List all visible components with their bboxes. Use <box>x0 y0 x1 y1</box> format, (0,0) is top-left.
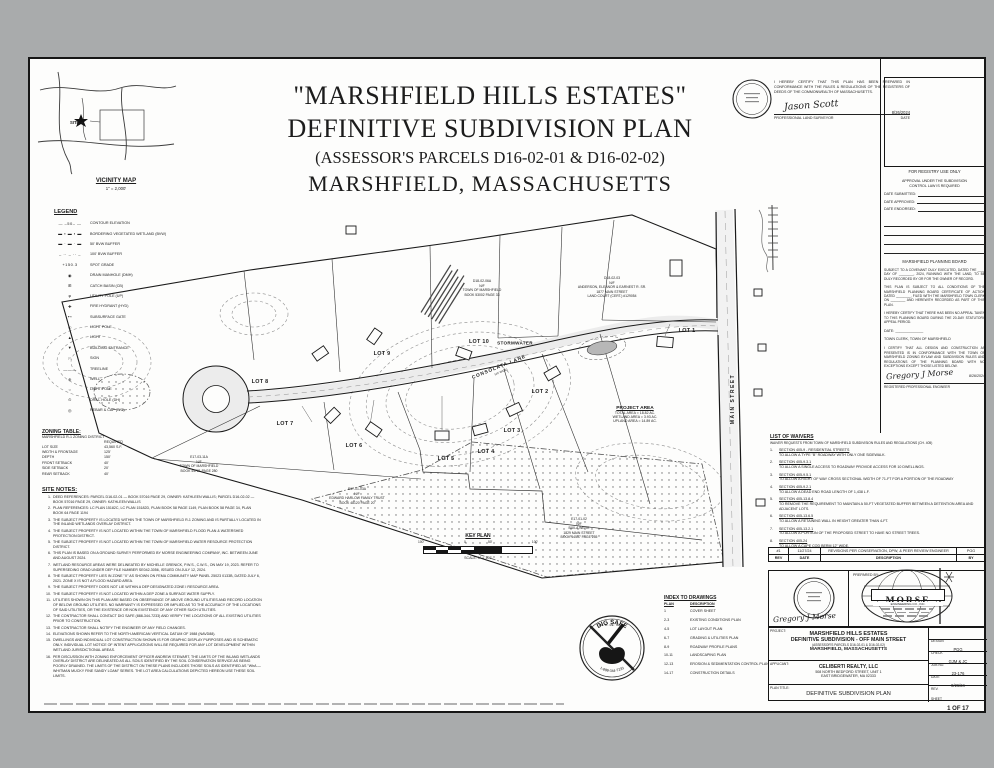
legend-row: ⊞CATCH BASIN (CB) <box>50 280 200 290</box>
meta-design: DESIGNPGG <box>929 628 987 640</box>
site-note: 1.DEED REFERENCES: PARCEL D16-02-01 — BO… <box>42 495 262 505</box>
lot-label-8: LOT 8 <box>252 379 269 385</box>
lot-label-2: LOT 2 <box>532 389 549 395</box>
legend-row: ✚FIRE HYDRANT (HYD) <box>50 301 200 311</box>
firm-address-line <box>883 615 931 617</box>
site-note: 2.PLAN REFERENCES: LC PLAN 15182C, LC PL… <box>42 506 262 516</box>
legend-row: +150.3SPOT GRADE <box>50 260 200 270</box>
legend-row: ▼BUILDING ENTRANCE <box>50 343 200 353</box>
legend-row: ▲LIGHT <box>50 332 200 342</box>
engineer-role: REGISTERED PROFESSIONAL ENGINEER <box>884 385 985 389</box>
abutter-label: D18-02-03 N/F ANDERSON, ELEANOR & EARNES… <box>578 276 646 299</box>
index-row: 1COVER SHEET <box>664 607 794 616</box>
site-note: 3.THE SUBJECT PROPERTY IS LOCATED WITHIN… <box>42 518 262 528</box>
signature-line <box>884 218 985 227</box>
lot-label-3: LOT 3 <box>504 428 521 434</box>
abutter-label: E17-03-11A N/F TOWN OF MARSHFIELD BOOK 4… <box>180 455 219 473</box>
wall-tick-line <box>759 205 778 272</box>
signature-line <box>884 236 985 245</box>
planning-conditions: THIS PLAN IS SUBJECT TO ALL CONDITIONS O… <box>884 285 985 307</box>
vicinity-site-label: SITE ★ <box>70 120 84 125</box>
registry-approval2: CONTROL LAW IS REQUIRED <box>884 184 985 189</box>
firm-subname: ENGINEERING CO., INC. <box>873 602 943 606</box>
revision-table: #1 11/27/24 REVISIONS PER CONSERVATION, … <box>768 547 986 562</box>
engine er-cert-text: I CERTIFY THAT ALL DESIGN AND CONSTRUCTI… <box>884 346 985 368</box>
waiver-item: 6.SECTION 405-13.6.5TO ALLOW A RETAINING… <box>770 514 986 524</box>
legend-row: ○LIGHT POLE <box>50 384 200 394</box>
lot-label-6: LOT 6 <box>346 443 363 449</box>
index-row: 10-11LANDSCAPING PLAN <box>664 651 794 660</box>
prepared-by-label: PREPARED BY: <box>853 573 879 578</box>
legend-row: ⊕WELL <box>50 374 200 384</box>
plan-title-line4: MARSHFIELD, MASSACHUSETTS <box>200 171 780 197</box>
site-note: 6.THIS PLAN IS BASED ON A GROUND SURVEY … <box>42 551 262 561</box>
planning-covenant: SUBJECT TO A COVENANT DULY EXECUTED, DAT… <box>884 268 985 281</box>
surveyor-role: PROFESSIONAL LAND SURVEYOR <box>774 116 834 121</box>
key-plan-title: KEY PLAN <box>418 533 538 539</box>
svg-text:1-888-344-7233: 1-888-344-7233 <box>599 666 624 673</box>
engineer-signature: Gregory J Morse <box>886 368 954 382</box>
digsafe-logo: DIG SAFE 1-888-344-7233 MA · RI · ME · N… <box>580 616 644 680</box>
key-plan-scale: SCALE: 1" = 100' <box>418 556 538 561</box>
legend-row: ﹏﹏﹏TREELINE <box>50 363 200 373</box>
index-row: 4-5LOT LAYOUT PLAN <box>664 625 794 634</box>
prepared-by-block: Gregory J Morse PREPARED BY: MORSE ENGIN… <box>768 570 986 627</box>
project-area-block: PROJECT AREA TOTAL AREA = 18.82 AC. WETL… <box>590 406 680 423</box>
lot-label-10: LOT 10 <box>469 339 489 345</box>
legend-row: ◉DRAIN MANHOLE (DMH) <box>50 270 200 280</box>
index-row: 8-9ROADWAY PROFILE PLANS <box>664 643 794 652</box>
stormwater-label: STORMWATER <box>497 341 533 346</box>
vicinity-title: VICINITY MAP <box>48 178 184 184</box>
lot-label-7: LOT 7 <box>277 421 294 427</box>
index-row: 14-17CONSTRUCTION DETAILS <box>664 669 794 678</box>
meta-date: DATE8/26/24 <box>929 664 987 676</box>
date-submitted-label: DATE SUBMITTED: <box>884 192 916 197</box>
legend-row: ⚐SIGN <box>50 353 200 363</box>
plan-title-cell: PLAN TITLE: DEFINITIVE SUBDIVISION PLAN <box>769 685 929 702</box>
site-notes: SITE NOTES: 1.DEED REFERENCES: PARCEL D1… <box>42 487 262 679</box>
rev-header: DATE <box>789 555 821 561</box>
column-divider <box>880 59 881 433</box>
site-note: 10.THE SUBJECT PROPERTY IS NOT LOCATED W… <box>42 592 262 597</box>
legend-title: LEGEND <box>54 209 200 215</box>
site-note: 16.PER DISCUSSION WITH ZONING ENFORCEMEN… <box>42 655 262 679</box>
registry-box-label: FOR REGISTRY USE ONLY <box>884 169 985 175</box>
waiver-item: 7.SECTION 405-13.2.1TO ALLOW A PORTION O… <box>770 527 986 537</box>
date-endorsed-label: DATE ENDORSED: <box>884 207 916 212</box>
waivers-block: LIST OF WAIVERS WAIVER REQUESTS FROM TOW… <box>770 434 986 549</box>
waivers-title: LIST OF WAIVERS <box>770 434 986 440</box>
meta-jobno: JOB NO.23-176 <box>929 652 987 664</box>
site-note: 12.THE CONTRACTOR SHALL CONTACT DIG SAFE… <box>42 614 262 624</box>
legend-row: ⊷SUBSURFACE GATE <box>50 312 200 322</box>
site-note: 4.THE SUBJECT PROPERTY IS NOT LOCATED WI… <box>42 529 262 539</box>
scale-ticks: 100' 0 50' 100' <box>418 540 538 546</box>
signature-line <box>884 245 985 254</box>
site-notes-title: SITE NOTES: <box>42 487 262 493</box>
firm-address-line <box>881 608 933 610</box>
digsafe-phone: 1-888-344-7233 <box>599 666 624 673</box>
vicinity-scale: 1" = 2,000' <box>48 186 184 191</box>
index-to-drawings: INDEX TO DRAWINGS PLANDESCRIPTION 1COVER… <box>664 595 794 678</box>
waiver-item: 5.SECTION 405-13.8.4TO REMOVE THE REQUIR… <box>770 497 986 512</box>
vicinity-map-roads <box>38 72 176 174</box>
meta-check: CHECKGJM & JC <box>929 640 987 652</box>
meta-column: DESIGNPGG CHECKGJM & JC JOB NO.23-176 DA… <box>929 628 987 700</box>
rev-header: DESCRIPTION <box>821 555 957 561</box>
abutter-label: E17-01-03A N/F EDWARD HARLOW FAMILY TRUS… <box>329 487 385 505</box>
lot-label-5: LOT 5 <box>438 456 455 462</box>
zoning-row: REAR SETBACK40' <box>42 472 192 477</box>
index-row: 2-3EXISTING CONDITIONS PLAN <box>664 616 794 625</box>
legend-row: ⊙DRILL HOLE (DH) <box>50 395 200 405</box>
waiver-item: 3.SECTION 405-9.5.1TO ALLOW A RIGHT OF W… <box>770 473 986 483</box>
footer-fineprint <box>44 703 564 705</box>
waiver-item: 4.SECTION 405-9.2.1TO ALLOW A DEAD END R… <box>770 485 986 495</box>
site-note: 14.ELEVATIONS SHOWN REFER TO THE NORTH A… <box>42 632 262 637</box>
lot-label-9: LOT 9 <box>374 351 391 357</box>
rev-cell: 11/27/24 <box>789 548 821 555</box>
page-background: { "colors":{"page_bg":"#a9abac","sheet":… <box>0 0 994 768</box>
meta-sheet: SHEET1 OF 17 <box>929 686 987 702</box>
digsafe-states: MA · RI · ME · NH · VT <box>599 623 626 627</box>
abutter-label: E17-01-02 N/F BUILA WEHR 1829 MAIN STREE… <box>561 517 598 540</box>
site-note: 8.THE SUBJECT PROPERTY LIES IN ZONE "X" … <box>42 574 262 584</box>
signature-line <box>884 227 985 236</box>
plan-title-line3: (ASSESSOR'S PARCELS D16-02-01 & D16-02-0… <box>200 148 780 168</box>
cul-de-sac-island <box>203 386 230 413</box>
index-row: 12-13EROSION & SEDIMENTATION CONTROL PLA… <box>664 660 794 669</box>
lot-label-1: LOT 1 <box>679 328 696 334</box>
legend: LEGEND — –50– —CONTOUR ELEVATION ▬ ▪ ▬ ▪… <box>50 209 200 415</box>
shovel-icon <box>599 647 625 664</box>
legend-row: — –50– —CONTOUR ELEVATION <box>50 218 200 228</box>
planning-date-line: DATE: ______________ <box>884 329 985 334</box>
engineer-date: 8/26/2024 <box>969 374 985 379</box>
site-note: 7.WETLAND RESOURCE AREAS WERE DELINEATED… <box>42 563 262 573</box>
main-street-label: MAIN STREET <box>730 374 736 424</box>
rev-cell: PGG <box>957 548 985 555</box>
registry-column: FOR REGISTRY USE ONLY APPROVAL UNDER THE… <box>884 77 985 390</box>
legend-row: ▬ ▪ ▬ ▪ ▬BORDERING VEGETATED WETLAND (BV… <box>50 228 200 238</box>
title-block: PROJECT: MARSHFIELD HILLS ESTATES DEFINI… <box>768 627 986 701</box>
town-clerk-line: TOWN CLERK, TOWN OF MARSHFIELD <box>884 337 985 342</box>
rev-cell: REVISIONS PER CONSERVATION, DPW, & PEER … <box>821 548 957 555</box>
legend-row: ▬ · ▬ · ▬50' BVW BUFFER <box>50 239 200 249</box>
planning-board-title: MARSHFIELD PLANNING BOARD <box>884 259 985 265</box>
plan-title-line2: DEFINITIVE SUBDIVISION PLAN <box>200 114 780 144</box>
plan-title-line1: "MARSHFIELD HILLS ESTATES" <box>200 81 780 111</box>
key-plan: KEY PLAN 100' 0 50' 100' SCALE: 1" = 100… <box>418 533 538 560</box>
sheet-header: "MARSHFIELD HILLS ESTATES" DEFINITIVE SU… <box>200 81 780 197</box>
rev-header: REV <box>769 555 789 561</box>
vicinity-caption: VICINITY MAP 1" = 2,000' <box>48 178 184 191</box>
legend-row: ☉LIGHT POLE <box>50 322 200 332</box>
planning-no-appeal: I HEREBY CERTIFY THAT THERE HAS BEEN NO … <box>884 311 985 324</box>
plan-title-label: PLAN TITLE: <box>770 686 789 690</box>
legend-row: φUTILITY POLE (UP) <box>50 291 200 301</box>
rev-cell: #1 <box>769 548 789 555</box>
site-note: 13.THE CONTRACTOR SHALL NOTIFY THE ENGIN… <box>42 626 262 631</box>
site-note: 11.UTILITIES SHOWN ON THIS PLAN ARE BASE… <box>42 598 262 613</box>
zoning-table: ZONING TABLE: MARSHFIELD R-1 ZONING DIST… <box>42 429 192 477</box>
site-note: 15.DWELLINGS AND INDIVIDUAL LOT CONSTRUC… <box>42 638 262 653</box>
surveyor-signature: Jason Scott <box>784 98 839 113</box>
waiver-item: 1.SECTION 405-9 - RESIDENTIAL STREETSTO … <box>770 448 986 458</box>
legend-row: – ·· – ·· –100' BVW BUFFER <box>50 249 200 259</box>
firm-address-line <box>885 612 929 614</box>
plan-sheet: DIG SAFE 1-888-344-7233 MA · RI · ME · N… <box>28 57 986 713</box>
site-note: 9.THE SUBJECT PROPERTY DOES NOT LIE WITH… <box>42 585 262 590</box>
index-row: 6-7GRADING & UTILITIES PLAN <box>664 634 794 643</box>
waivers-subtitle: WAIVER REQUESTS FROM TOWN OF MARSHFIELD … <box>770 441 986 445</box>
scale-bar <box>423 546 533 554</box>
morse-band: MORSE <box>871 589 945 601</box>
abutter-label: D18-02-06A N/F TOWN OF MARSHFIELD BOOK 5… <box>463 279 502 297</box>
waiver-item: 2.SECTION 405-9.3.1TO ALLOW A SINGLE ACC… <box>770 460 986 470</box>
plan-title-value: DEFINITIVE SUBDIVISION PLAN <box>769 691 928 697</box>
legend-row: ◎REBAR & CAP (R/C) <box>50 405 200 415</box>
meta-rev: REV. <box>929 676 987 686</box>
site-note: 5.THE SUBJECT PROPERTY IS NOT LOCATED WI… <box>42 540 262 550</box>
rev-header: BY <box>957 555 985 561</box>
registry-box <box>884 77 985 167</box>
date-approved-label: DATE APPROVED: <box>884 200 915 205</box>
lot-label-4: LOT 4 <box>478 449 495 455</box>
